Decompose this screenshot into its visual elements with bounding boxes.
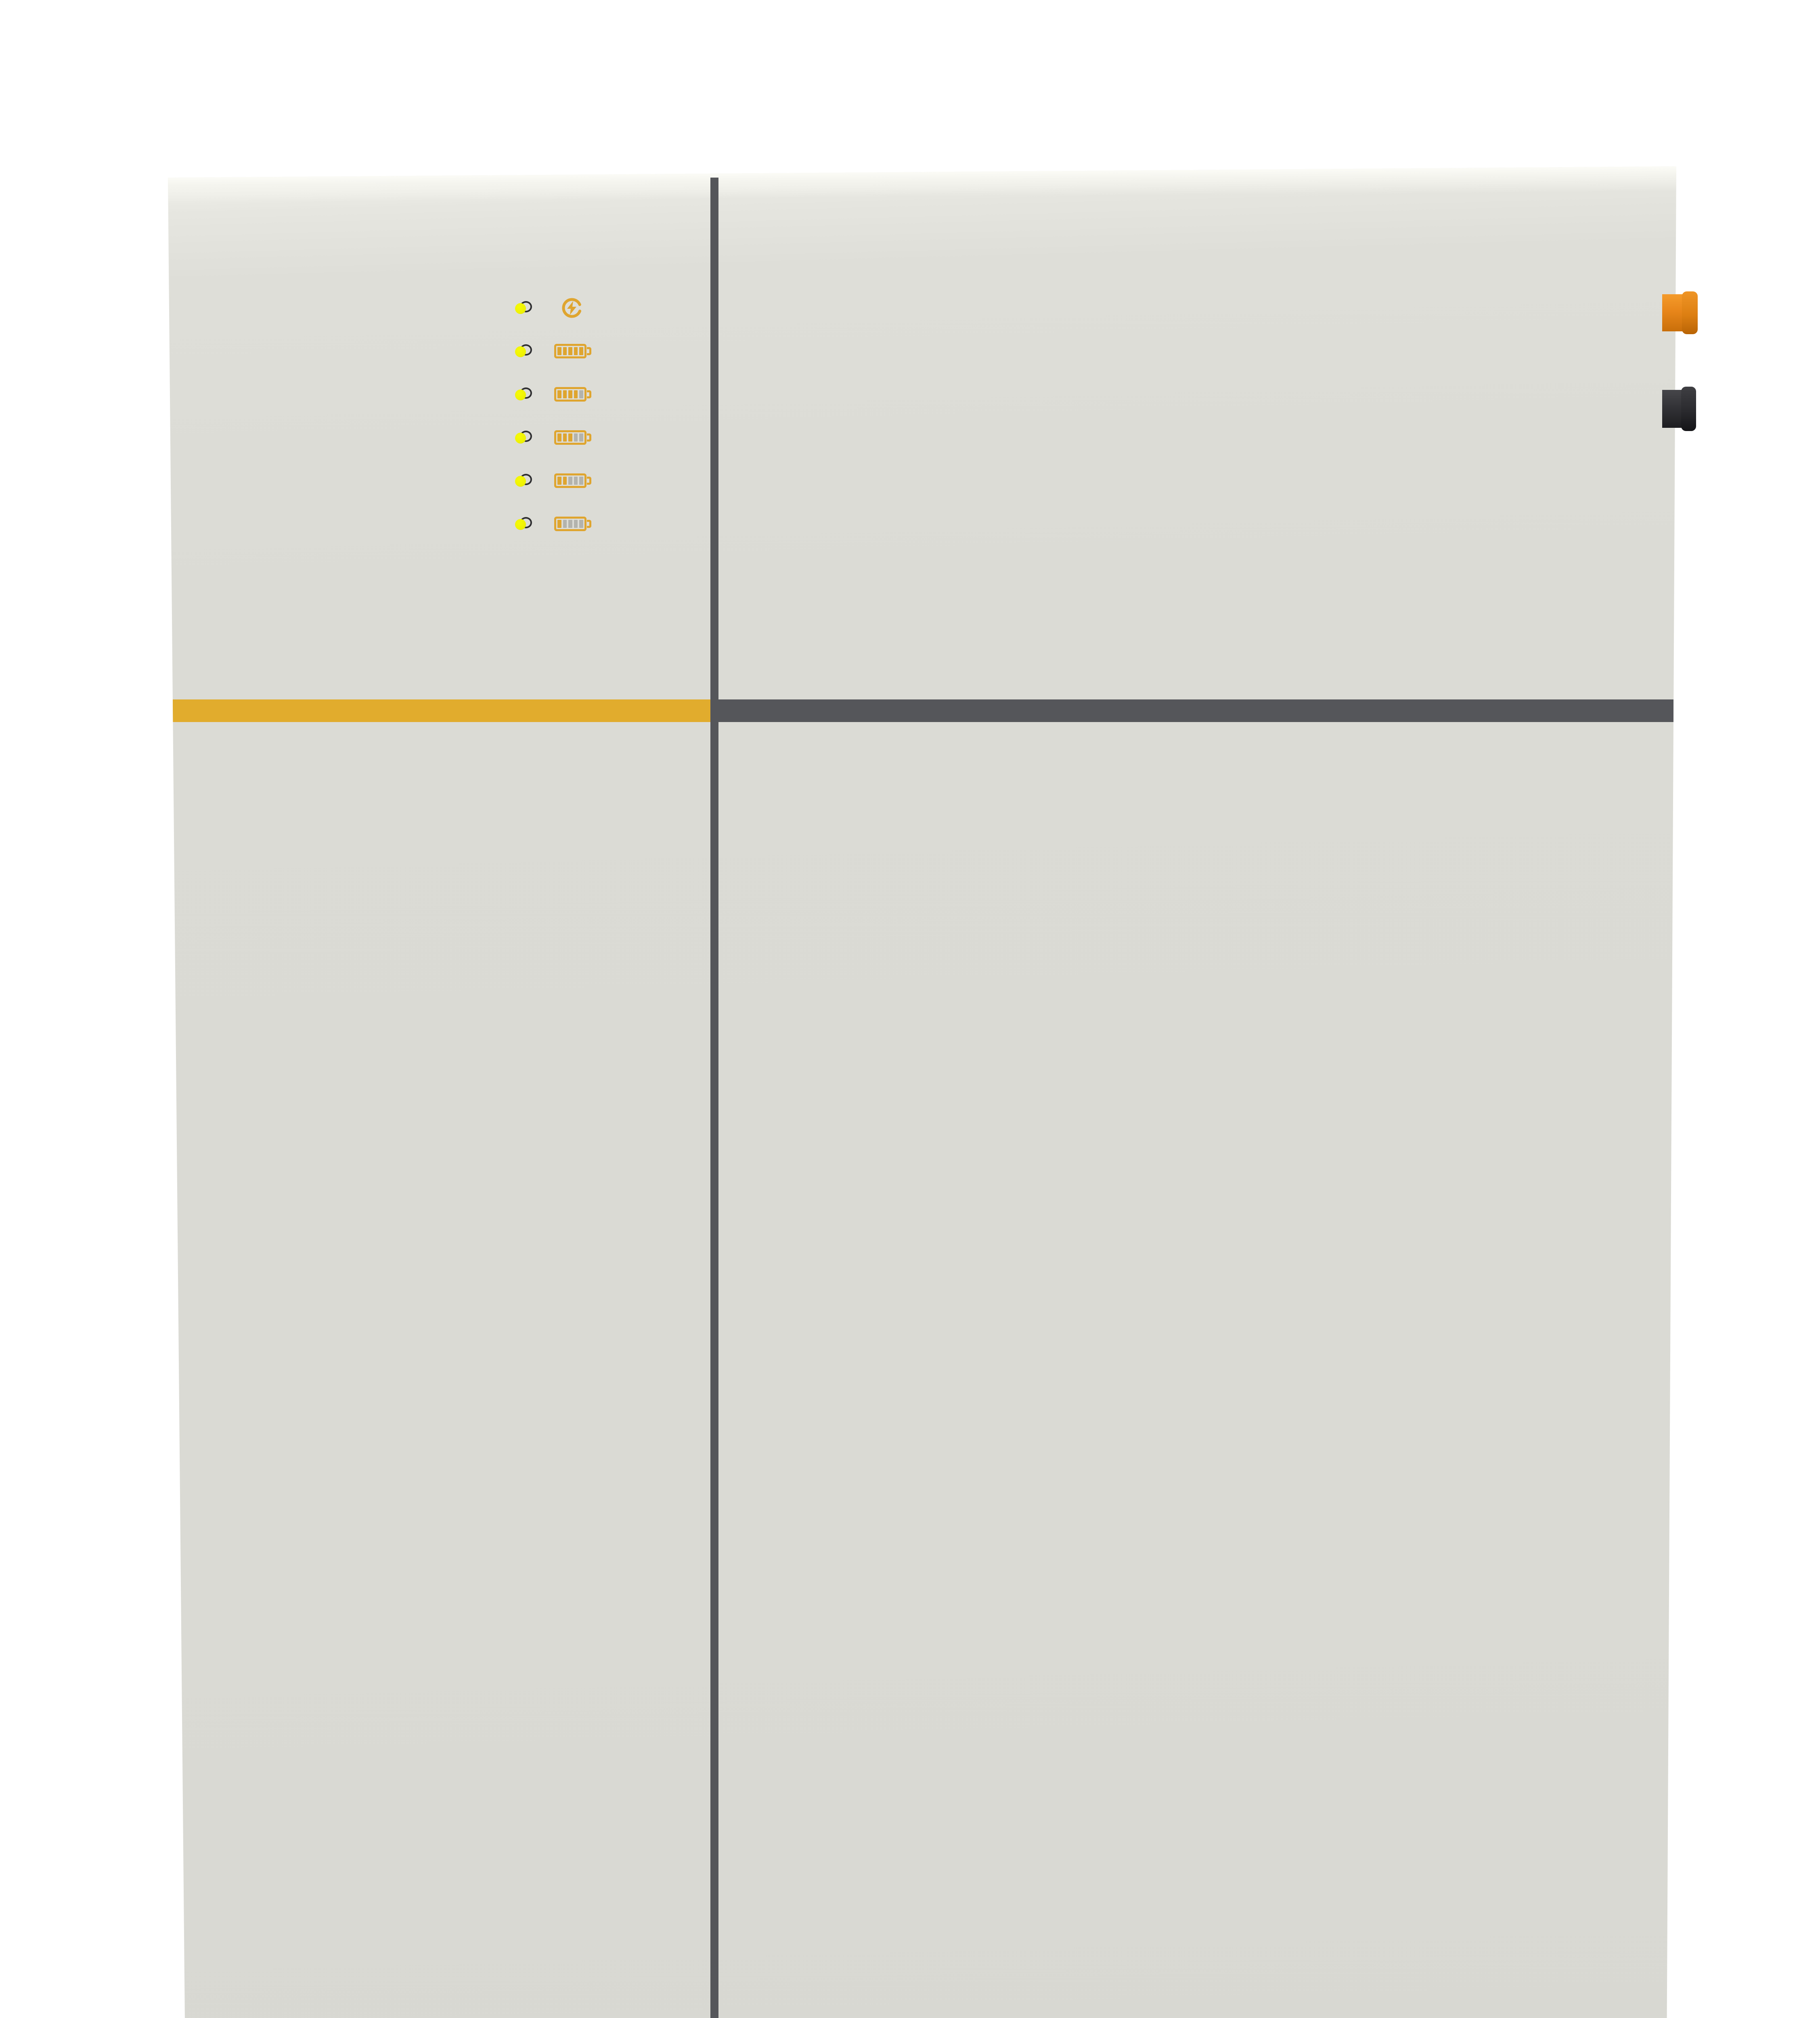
battery-segment [568,520,572,528]
battery-segment [579,433,583,442]
led-row [515,339,586,363]
battery-segment [568,433,572,442]
battery-segment [557,520,561,528]
battery-level-icon-4of5 [554,387,586,402]
battery-segment [563,520,567,528]
battery-segment [568,477,572,485]
product-photo: TRIPLE POWER [0,0,1820,2018]
battery-segment [557,433,561,442]
panel-divider-line [710,178,718,2018]
battery-segment [563,477,567,485]
black-connector-body [1662,390,1683,428]
led-row [515,296,583,320]
battery-level-icon-3of5 [554,430,586,445]
status-led [515,473,533,488]
status-led [515,301,533,315]
battery-segment [574,477,578,485]
battery-segment [557,477,561,485]
led-dot-on [515,303,526,314]
led-row [515,425,586,450]
status-led [515,344,533,358]
status-led [515,517,533,531]
battery-segment [579,477,583,485]
led-dot-on [515,519,526,530]
battery-segment [579,520,583,528]
top-bevel-highlight [168,165,1677,203]
battery-level-icon-5of5 [554,344,586,358]
battery-segment [557,347,561,355]
battery-segment [574,390,578,398]
battery-segment [563,347,567,355]
dark-accent-stripe [718,699,1673,722]
battery-segment [574,520,578,528]
bolt-glyph [567,301,576,315]
charging-bolt-circle-icon [561,297,583,319]
battery-cabinet: TRIPLE POWER [168,161,1677,2018]
battery-segment [579,347,583,355]
battery-segment [579,390,583,398]
battery-segment [568,390,572,398]
led-dot-on [515,346,526,357]
led-dot-on [515,433,526,444]
battery-segment [563,390,567,398]
battery-segment [574,347,578,355]
status-led [515,387,533,402]
black-connector-cap [1681,387,1696,431]
led-dot-on [515,389,526,400]
battery-segment [568,347,572,355]
led-row [515,512,586,536]
battery-level-icon-1of5 [554,517,586,531]
orange-connector-cap [1682,291,1698,334]
battery-level-icon-2of5 [554,473,586,488]
led-row [515,469,586,493]
battery-segment [557,390,561,398]
battery-segment [563,433,567,442]
led-row [515,382,586,406]
led-status-panel [515,296,644,562]
led-dot-on [515,476,526,487]
orange-connector-body [1662,294,1684,331]
orange-cap-connector [1662,291,1698,334]
status-led [515,430,533,445]
black-knob-connector [1662,387,1696,431]
battery-segment [574,433,578,442]
yellow-accent-stripe [173,699,710,722]
